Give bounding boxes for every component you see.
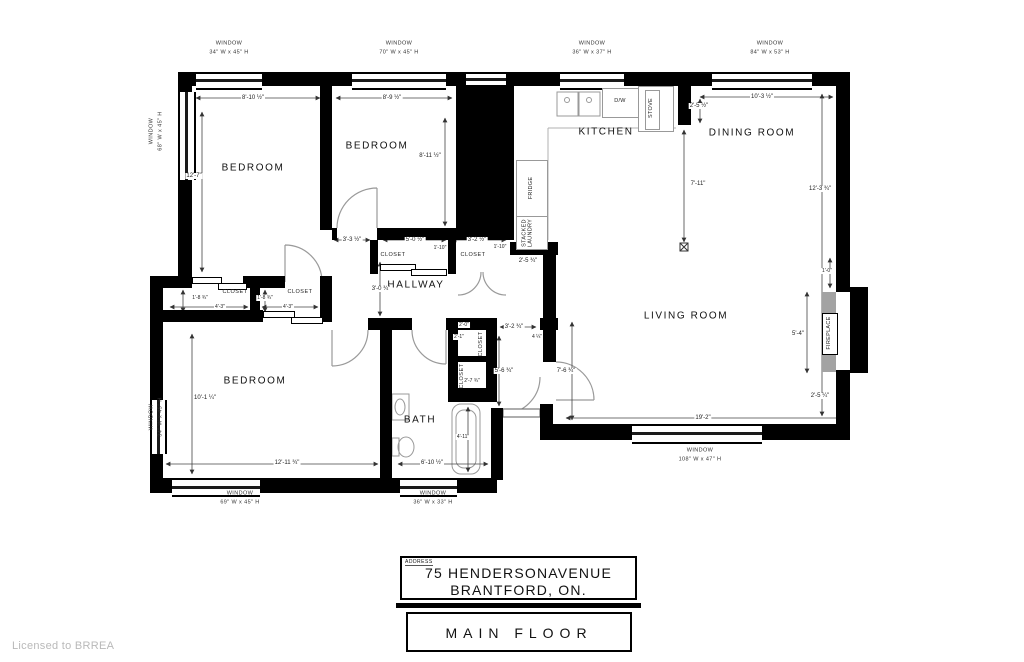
sliding-door-panel	[291, 317, 323, 324]
window-label-title: WINDOW	[148, 397, 157, 436]
kitchen-counter-outline	[548, 128, 676, 240]
window-label: WINDOW34" W x 45" H	[148, 397, 167, 436]
window-label-title: WINDOW	[750, 40, 789, 49]
room-label: HALLWAY	[387, 280, 444, 291]
dim-end-box-icon	[548, 243, 688, 252]
room-label: KITCHEN	[578, 127, 633, 138]
dimension-label: 12'-11 ¾"	[274, 460, 301, 466]
wall	[543, 255, 556, 362]
dimension-label: 2'-5 ¾"	[518, 258, 539, 264]
kitchen-sink-icon	[557, 92, 600, 116]
fixture-label: STOVE	[648, 97, 654, 119]
window-label-title: WINDOW	[572, 40, 611, 49]
wall	[150, 310, 263, 322]
wall	[446, 318, 497, 330]
window	[196, 72, 262, 90]
dimension-label: 1'-10"	[493, 244, 508, 250]
dimension-label: 3'-3 ½"	[342, 237, 363, 243]
wall	[486, 330, 497, 388]
window-label: WINDOW108" W x 47" H	[679, 447, 722, 466]
dimension-label: 8'-11 ½"	[418, 153, 442, 159]
window-label-size: 68" W x 45" H	[157, 111, 166, 150]
dimension-label: 10'-3 ½"	[750, 94, 774, 100]
wall	[850, 287, 868, 373]
window	[466, 72, 506, 87]
address-line1: 75 HENDERSONAVENUE	[402, 565, 635, 581]
dimension-label: 2'-5 ½"	[689, 103, 710, 109]
wall	[380, 330, 392, 478]
floor-title-box: MAIN FLOOR	[406, 612, 632, 652]
dimension-label: 5'-0 ½"	[405, 237, 426, 243]
dimension-label: 7'-11"	[690, 181, 707, 187]
dimension-label: 10'-1 ¼"	[193, 395, 217, 401]
window-label-size: 70" W x 45" H	[379, 49, 418, 58]
room-label: BEDROOM	[224, 376, 287, 387]
closet-label: CLOSET	[222, 289, 247, 295]
floor-plan: BEDROOMBEDROOMKITCHENDINING ROOMLIVING R…	[0, 0, 1024, 524]
dimension-label: 2'-0"	[458, 322, 470, 328]
wall	[448, 240, 456, 274]
dimension-label: 7'-6 ¾"	[556, 368, 577, 374]
floor-title: MAIN FLOOR	[408, 625, 630, 641]
window-label: WINDOW36" W x 37" H	[572, 40, 611, 59]
dimension-label: 1'-8 ¾"	[256, 295, 274, 301]
dimension-label: 3'-2 ¾"	[504, 324, 525, 330]
address-line2: BRANTFORD, ON.	[402, 582, 635, 598]
dimension-label: 8'-10 ½"	[241, 95, 265, 101]
wall	[458, 356, 486, 362]
license-watermark: Licensed to BRREA	[12, 640, 114, 652]
wall	[368, 318, 412, 330]
window-label-size: 84" W x 53" H	[750, 49, 789, 58]
wall	[456, 72, 514, 234]
dimension-label: 12'-7"	[185, 173, 202, 179]
closet-label: CLOSET	[380, 252, 405, 258]
dimension-label: 3'-2 ½"	[467, 237, 488, 243]
dimension-label: 1'-0"	[821, 268, 833, 274]
window-label-size: 34" W x 45" H	[209, 49, 248, 58]
window-label-size: 34" W x 45" H	[157, 397, 166, 436]
room-label: DINING ROOM	[709, 128, 796, 139]
fixture-label: FIREPLACE	[826, 315, 832, 350]
dimension-label: 3'-0 ¾"	[371, 286, 392, 292]
floor-plan-page: BEDROOMBEDROOMKITCHENDINING ROOMLIVING R…	[0, 0, 1024, 662]
dimension-label: 4'-3"	[214, 304, 226, 310]
wall	[332, 228, 337, 240]
dimension-label: 1'-10"	[433, 245, 448, 251]
closet-label: CLOSET	[459, 363, 465, 388]
window-label: WINDOW69" W x 45" H	[220, 490, 259, 509]
wall	[540, 404, 553, 440]
window-label-size: 36" W x 33" H	[413, 499, 452, 508]
dimension-label: 2'-5 ¼"	[810, 393, 831, 399]
wall	[150, 276, 163, 492]
room-label: BEDROOM	[222, 163, 285, 174]
window	[712, 72, 812, 90]
wall	[377, 228, 514, 240]
window-label-title: WINDOW	[679, 447, 722, 456]
dimension-label: 1'-8 ¾"	[191, 295, 209, 301]
fixture-label: D/W	[613, 98, 627, 104]
window-label: WINDOW68" W x 45" H	[148, 111, 167, 150]
closet-label: CLOSET	[287, 289, 312, 295]
window	[352, 72, 446, 90]
dimension-label: 8'-9 ½"	[382, 95, 403, 101]
window	[632, 424, 762, 444]
dimension-label: 4'-3"	[282, 304, 294, 310]
wall	[448, 388, 497, 402]
room-label: BEDROOM	[346, 141, 409, 152]
wall	[370, 240, 378, 274]
sliding-door-panel	[411, 269, 447, 276]
address-box: ADDRESS 75 HENDERSONAVENUE BRANTFORD, ON…	[400, 556, 637, 600]
window-label: WINDOW34" W x 45" H	[209, 40, 248, 59]
window-label: WINDOW70" W x 45" H	[379, 40, 418, 59]
window	[178, 92, 196, 180]
window-label-title: WINDOW	[220, 490, 259, 499]
wall	[540, 318, 558, 330]
window-label-size: 108" W x 47" H	[679, 456, 722, 465]
dimension-label: 5'-4"	[791, 331, 805, 337]
dimension-label: 2'-1"	[453, 334, 465, 340]
closet-label: CLOSET	[478, 331, 484, 356]
dimension-label: 19'-2"	[694, 415, 711, 421]
window-label-title: WINDOW	[148, 111, 157, 150]
dimension-label: 2'-7 ¾"	[463, 378, 481, 384]
window-label-title: WINDOW	[379, 40, 418, 49]
fixture-label: STACKEDLAUNDRY	[522, 218, 535, 248]
fixture-label-line2: LAUNDRY	[528, 219, 534, 247]
window-label-size: 36" W x 37" H	[572, 49, 611, 58]
room-label: BATH	[404, 415, 436, 426]
window-label-size: 69" W x 45" H	[220, 499, 259, 508]
room-label: LIVING ROOM	[644, 311, 728, 322]
wall	[836, 72, 850, 292]
closet-label: CLOSET	[460, 252, 485, 258]
dimension-label: 5'-6 ¾"	[494, 368, 515, 374]
wall	[322, 276, 332, 288]
dimension-label: 4 ¼"	[531, 334, 543, 340]
wall	[491, 408, 503, 480]
title-divider-bar	[396, 603, 641, 608]
window-label: WINDOW84" W x 53" H	[750, 40, 789, 59]
window-label: WINDOW36" W x 33" H	[413, 490, 452, 509]
window-label-title: WINDOW	[209, 40, 248, 49]
window-label-title: WINDOW	[413, 490, 452, 499]
fixture-label: FRIDGE	[528, 176, 534, 201]
dimension-label: 4'-11"	[456, 434, 470, 440]
fireplace-hearth	[822, 292, 836, 314]
dimension-label: 12'-3 ¾"	[808, 186, 832, 192]
dimension-label: 6'-10 ½"	[420, 460, 444, 466]
fireplace-hearth	[822, 352, 836, 372]
wall	[320, 84, 332, 230]
